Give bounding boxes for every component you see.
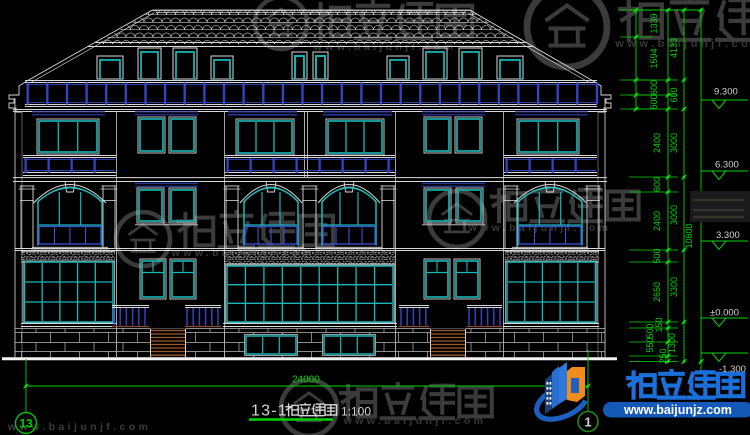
svg-text:600: 600 [649, 80, 659, 95]
svg-text:150: 150 [654, 317, 664, 332]
svg-text:1594: 1594 [649, 48, 659, 68]
svg-text:3.300: 3.300 [716, 230, 740, 241]
svg-text:±0.000: ±0.000 [710, 308, 739, 319]
svg-text:600: 600 [649, 94, 659, 109]
svg-text:3300: 3300 [669, 277, 679, 297]
svg-text:1:100: 1:100 [341, 405, 371, 419]
svg-text:4133: 4133 [669, 38, 679, 58]
svg-text:600: 600 [669, 87, 679, 102]
svg-text:500: 500 [652, 248, 662, 263]
svg-text:600: 600 [652, 177, 662, 192]
svg-text:2400: 2400 [652, 211, 662, 231]
svg-text:10600: 10600 [684, 223, 694, 248]
svg-text:24000: 24000 [292, 375, 320, 386]
svg-text:6.300: 6.300 [715, 160, 739, 171]
svg-text:500: 500 [645, 323, 655, 338]
svg-text:1339: 1339 [649, 13, 659, 33]
svg-text:9.300: 9.300 [714, 87, 738, 98]
svg-text:3000: 3000 [669, 205, 679, 225]
svg-text:2400: 2400 [652, 133, 662, 153]
svg-text:1: 1 [584, 415, 591, 430]
svg-text:3000: 3000 [669, 133, 679, 153]
svg-text:2650: 2650 [652, 282, 662, 302]
svg-text:13-1: 13-1 [251, 403, 288, 420]
svg-text:13: 13 [19, 417, 33, 431]
svg-text:1300: 1300 [667, 333, 677, 353]
svg-text:www.baijunjz.com: www.baijunjz.com [623, 403, 732, 417]
svg-text:550: 550 [645, 337, 655, 352]
svg-text:www.baijunjf.com: www.baijunjf.com [614, 38, 750, 50]
